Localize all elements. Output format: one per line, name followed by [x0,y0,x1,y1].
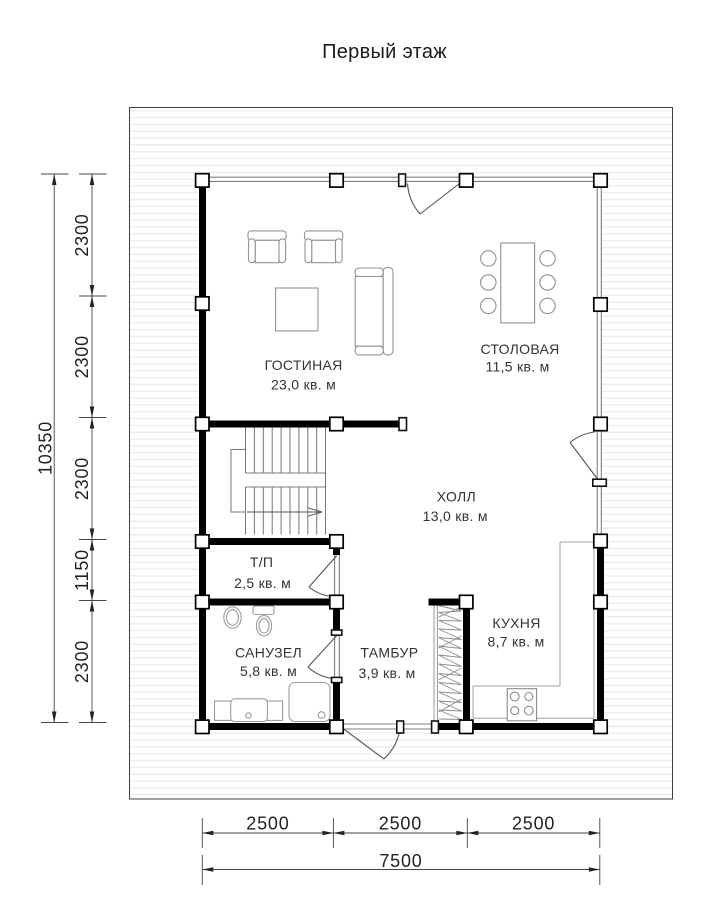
svg-text:11,5 кв. м: 11,5 кв. м [485,359,549,375]
svg-text:1150: 1150 [72,549,92,591]
svg-text:Т/П: Т/П [250,554,273,570]
svg-text:ГОСТИНАЯ: ГОСТИНАЯ [265,357,343,373]
svg-text:3,9 кв. м: 3,9 кв. м [358,665,415,681]
svg-text:23,0 кв. м: 23,0 кв. м [271,377,336,393]
svg-text:2300: 2300 [72,213,92,256]
svg-text:КУХНЯ: КУХНЯ [492,615,540,631]
svg-text:ХОЛЛ: ХОЛЛ [437,488,476,504]
svg-text:8,7 кв. м: 8,7 кв. м [487,634,544,650]
svg-text:5,8 кв. м: 5,8 кв. м [240,663,297,679]
svg-text:2300: 2300 [72,457,92,500]
svg-text:ТАМБУР: ТАМБУР [360,645,418,661]
svg-text:10350: 10350 [36,421,56,475]
svg-text:2500: 2500 [512,814,555,834]
svg-text:СТОЛОВАЯ: СТОЛОВАЯ [480,341,559,357]
svg-text:САНУЗЕЛ: САНУЗЕЛ [235,645,302,661]
svg-text:2300: 2300 [72,335,92,378]
svg-text:2500: 2500 [379,814,422,834]
svg-text:2300: 2300 [72,640,92,683]
svg-text:2,5 кв. м: 2,5 кв. м [234,575,291,591]
svg-text:Первый этаж: Первый этаж [322,41,447,63]
svg-text:7500: 7500 [379,851,422,871]
svg-text:2500: 2500 [246,814,289,834]
svg-text:13,0 кв. м: 13,0 кв. м [423,508,488,524]
